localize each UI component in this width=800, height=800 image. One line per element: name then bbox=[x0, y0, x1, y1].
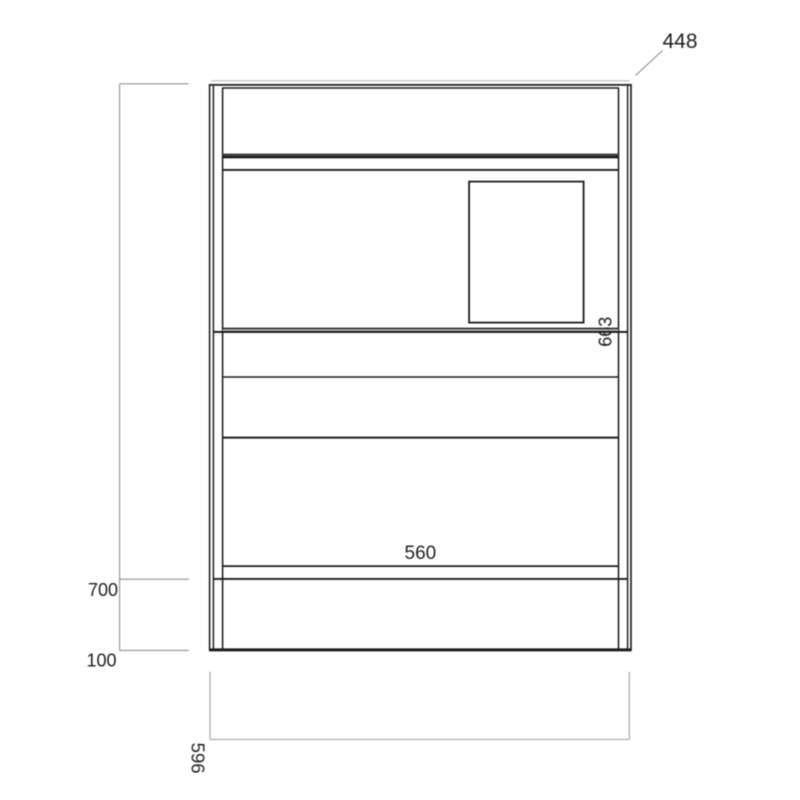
svg-text:596: 596 bbox=[187, 743, 208, 774]
svg-text:100: 100 bbox=[86, 651, 116, 671]
svg-text:560: 560 bbox=[405, 543, 437, 564]
svg-text:700: 700 bbox=[88, 580, 118, 600]
svg-text:448: 448 bbox=[663, 30, 698, 53]
